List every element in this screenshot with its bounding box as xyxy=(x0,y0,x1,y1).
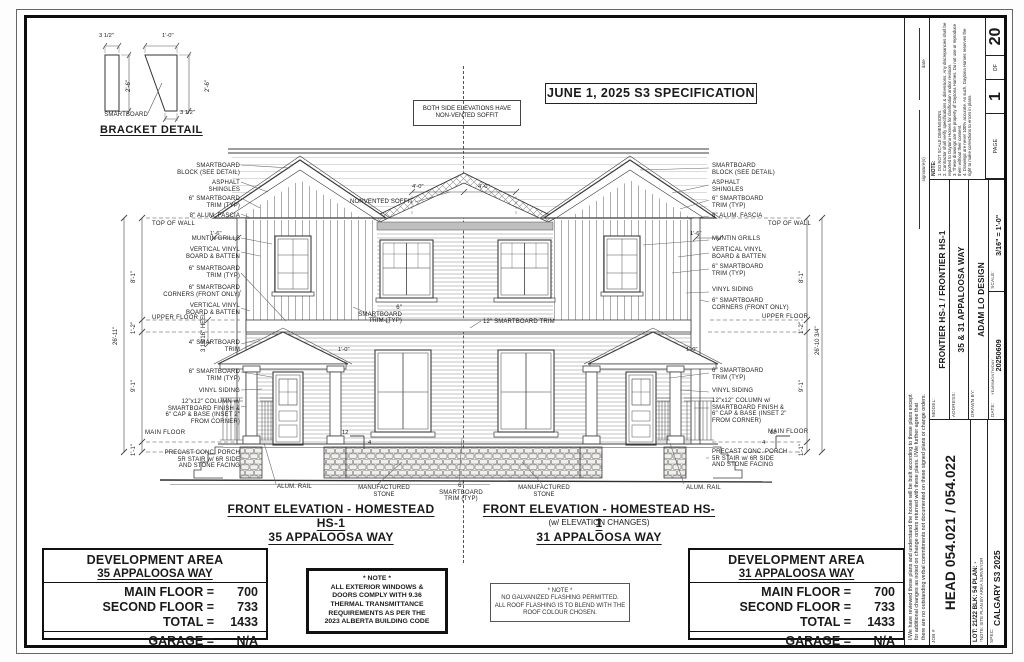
main-floor-label: MAIN FLOOR xyxy=(145,430,185,436)
scale-cell: SCALE: 3/16" = 1'-0" xyxy=(989,180,1005,291)
date-format-label: YEAR/MONTH/DAY xyxy=(990,359,995,395)
annotation-label: 6" SMARTBOARD CORNERS (FRONT ONLY) xyxy=(163,285,240,298)
development-area-title: DEVELOPMENT AREA xyxy=(690,553,903,567)
date-label: date xyxy=(921,28,926,100)
bracket-dim-width1: 3 1/2" xyxy=(99,33,114,39)
dimension: 1'-2" xyxy=(799,322,805,334)
address-value: 35 & 31 APPALOOSA WAY xyxy=(957,247,966,353)
annotation-label: ALUM. RAIL xyxy=(686,485,721,492)
annotation-label: MUNTIN GRILLS xyxy=(712,236,760,243)
annotation-label: PRECAST CONC. PORCH 5R STAIR w/ 6R SIDE … xyxy=(165,450,240,470)
scale-value: 3/16" = 1'-0" xyxy=(994,215,1003,256)
pitch-rise: 4 xyxy=(368,440,371,446)
annotation-label: 6" SMARTBOARD TRIM (TYP) xyxy=(712,264,763,277)
date-value: 20250609 xyxy=(994,339,1003,371)
note-line: * NOTE * xyxy=(491,588,629,595)
annotation-label: SMARTBOARD BLOCK (SEE DETAIL) xyxy=(177,163,240,176)
note-item: 4. Drawings are never 100% accurate. As … xyxy=(962,21,972,176)
row-label: TOTAL = xyxy=(800,615,851,629)
address-row: ADDRESS: 35 & 31 APPALOOSA WAY xyxy=(950,180,970,419)
annotation-label: 6" SMARTBOARD TRIM (TYP) xyxy=(189,369,240,382)
row-value: N/A xyxy=(851,634,895,648)
date-field: date xyxy=(908,28,926,100)
signature-strip: I/We have reviewed these plans and under… xyxy=(905,18,930,645)
note-line: ALL EXTERIOR WINDOWS & xyxy=(309,584,445,593)
bracket-dim-height1: 2'-6" xyxy=(126,80,132,92)
row-value: 733 xyxy=(214,600,258,614)
row-label: SECOND FLOOR = xyxy=(103,600,214,614)
annotation-label: 8" ALUM. FASCIA xyxy=(190,213,240,220)
annotation-label: 6" SMARTBOARD TRIM (TYP) xyxy=(712,196,763,209)
dimension: 9'-1" xyxy=(131,380,137,392)
model-value: FRONTIER HS-1 / FRONTIER HS-1 xyxy=(938,230,947,368)
bracket-dim-width2: 1'-0" xyxy=(162,33,174,39)
annotation-label: ASPHALT SHINGLES xyxy=(208,180,240,193)
development-area-address: 31 APPALOOSA WAY xyxy=(690,568,903,580)
annotation-label: VINYL SIDING xyxy=(712,388,753,395)
annotation-label: NONVENTED SOFFIT xyxy=(350,199,413,206)
bracket-dim-bottom: 3 1/2" xyxy=(180,110,195,116)
plan-sheet: 3 1/2" 1'-0" 2'-6" 2'-6" 3 1/2" SMARTBOA… xyxy=(0,0,1024,662)
development-area-header: DEVELOPMENT AREA 31 APPALOOSA WAY xyxy=(690,550,903,583)
annotation-label: VINYL SIDING xyxy=(199,388,240,395)
development-area-table-35: DEVELOPMENT AREA 35 APPALOOSA WAY MAIN F… xyxy=(42,548,268,640)
spec-date-banner: JUNE 1, 2025 S3 SPECIFICATION xyxy=(545,83,757,104)
drawn-by-label: DRAWN BY: xyxy=(970,390,975,417)
annotation-label: 8" ALUM. FASCIA xyxy=(712,213,762,220)
table-row: SECOND FLOOR =733 xyxy=(690,600,895,614)
upper-floor-label: UPPER FLOOR xyxy=(152,315,198,321)
row-label: SECOND FLOOR = xyxy=(740,600,851,614)
signature-label: signature(s) xyxy=(921,110,926,229)
annotation-label: 6" SMARTBOARD TRIM (TYP) xyxy=(189,196,240,209)
note-line: ALL ROOF FLASHING IS TO BLEND WITH THE xyxy=(491,603,629,610)
bracket-detail-title: BRACKET DETAIL xyxy=(100,124,203,136)
date-cell: DATE: YEAR/MONTH/DAY 20250609 xyxy=(989,291,1005,419)
dimension-overall: 26'-11" xyxy=(113,327,119,345)
annotation-label: 6" SMARTBOARD TRIM (TYP) xyxy=(189,266,240,279)
annotation-label: 6" SMARTBOARD TRIM (TYP) xyxy=(352,305,402,325)
page-label: PAGE xyxy=(993,139,999,154)
annotation-label: VERTICAL VINYL BOARD & BATTEN xyxy=(712,247,766,260)
garage-row: GARAGE =N/A xyxy=(690,631,903,650)
bracket-material-label: SMARTBOARD xyxy=(100,112,148,119)
top-of-wall-label: TOP OF WALL xyxy=(768,221,811,227)
row-label: GARAGE = xyxy=(785,634,851,648)
row-value: 1433 xyxy=(214,615,258,629)
lot-note: *NOTE: SITE PLAN BY AREA SURVEYOR xyxy=(979,423,984,642)
row-label: TOTAL = xyxy=(163,615,214,629)
signature-field: signature(s) xyxy=(908,110,926,229)
date-line xyxy=(908,28,920,100)
annotation-label: ASPHALT SHINGLES xyxy=(712,180,744,193)
elevation-title-left: FRONT ELEVATION - HOMESTEAD HS-1 xyxy=(215,502,447,530)
bracket-dim-height2: 2'-6" xyxy=(205,80,211,92)
elevation-address-left: 35 APPALOOSA WAY xyxy=(215,530,447,544)
page-number: 1 xyxy=(987,92,1005,101)
pitch-rise: 4 xyxy=(762,440,765,446)
annotation-label: 12" SMARTBOARD TRIM xyxy=(483,319,555,326)
disclaimer-text: I/We have reviewed these plans and under… xyxy=(905,233,929,645)
note-line: * NOTE * xyxy=(309,575,445,584)
dimension: 1'-0" xyxy=(338,347,350,353)
note-item: 2. Contractor shall verify specification… xyxy=(942,21,952,176)
note-item: 3. These drawings are the property of Da… xyxy=(952,21,962,176)
model-row: MODEL: FRONTIER HS-1 / FRONTIER HS-1 xyxy=(930,180,950,419)
job-number-label: JOB # xyxy=(931,629,936,643)
annotation-label: ALUM. RAIL xyxy=(277,484,312,491)
job-number-value: HEAD 054.021 / 054.022 xyxy=(943,455,958,610)
disclaimer-line: there are no outstanding verbal commitme… xyxy=(921,235,927,640)
annotation-label: VINYL SIDING xyxy=(712,287,753,294)
dimension: 8'-1" xyxy=(799,271,805,283)
dimension: 1'-2" xyxy=(131,322,137,334)
page-of-label: OF xyxy=(993,64,999,72)
table-row: TOTAL =1433 xyxy=(44,615,258,629)
annotation-label: 12"x12" COLUMN w/ SMARTBOARD FINISH & 6"… xyxy=(712,398,787,424)
note-line: REQUIREMENTS AS PER THE xyxy=(309,610,445,619)
annotation-label: 4" SMARTBOARD TRIM xyxy=(189,340,240,353)
note-line: DOORS COMPLY WITH 9.36 xyxy=(309,592,445,601)
date-cell-label: DATE: xyxy=(990,403,995,417)
dimension: 1'-1" xyxy=(799,444,805,456)
dimension: 1'-0" xyxy=(686,347,698,353)
annotation-label: PRECAST CONC. PORCH 5R STAIR w/ 6R SIDE … xyxy=(712,449,787,469)
spec-value: CALGARY S3 2025 xyxy=(992,550,1002,626)
pitch-run: 12 xyxy=(770,430,776,436)
dimension: 1'-6" xyxy=(210,231,222,237)
pitch-run: 12 xyxy=(342,430,348,436)
model-label: MODEL: xyxy=(931,398,936,417)
dimension-overall: 26'-10 3/4" xyxy=(815,326,821,355)
dimension: 4'-0" xyxy=(478,184,490,190)
table-row: TOTAL =1433 xyxy=(690,615,895,629)
job-section: JOB # HEAD 054.021 / 054.022 LOT: 21/22 … xyxy=(930,419,1004,645)
row-value: N/A xyxy=(214,634,258,648)
annotation-label: MANUFACTURED STONE xyxy=(358,485,410,498)
drawn-by-row: DRAWN BY: ADAM LO DESIGN xyxy=(969,180,989,419)
page-total: 20 xyxy=(987,28,1005,46)
drawn-by-value: ADAM LO DESIGN xyxy=(977,262,986,337)
soffit-note-box: BOTH SIDE ELEVATIONS HAVE NON-VENTED SOF… xyxy=(413,100,521,126)
notes-section: NOTE: 1. DO NOT SCALE DIMENSIONS. 2. Con… xyxy=(930,18,1004,179)
table-row: MAIN FLOOR =700 xyxy=(44,585,258,599)
page-number-box: PAGE 1 OF 20 xyxy=(986,18,1004,179)
row-value: 700 xyxy=(851,585,895,599)
spec-label: SPEC: xyxy=(989,628,994,643)
annotation-label: MANUFACTURED STONE xyxy=(518,485,570,498)
dimension: 1'-1" xyxy=(131,444,137,456)
annotation-label: 12"x12" COLUMN w/ SMARTBOARD FINISH & 6"… xyxy=(165,399,240,425)
table-row: MAIN FLOOR =700 xyxy=(690,585,895,599)
dimension: 9'-1" xyxy=(799,380,805,392)
date-scale-row: DATE: YEAR/MONTH/DAY 20250609 SCALE: 3/1… xyxy=(989,180,1005,419)
dimension: 8'-1" xyxy=(131,271,137,283)
row-label: GARAGE = xyxy=(148,634,214,648)
note-line: THERMAL TRANSMITTANCE xyxy=(309,601,445,610)
table-row: SECOND FLOOR =733 xyxy=(44,600,258,614)
row-label: MAIN FLOOR = xyxy=(761,585,851,599)
spec-row: SPEC: CALGARY S3 2025 xyxy=(988,420,1004,645)
garage-row: GARAGE =N/A xyxy=(44,631,266,650)
top-of-wall-label: TOP OF WALL xyxy=(152,221,195,227)
row-value: 700 xyxy=(214,585,258,599)
elevation-address-right: 31 APPALOOSA WAY xyxy=(482,530,716,544)
upper-floor-label: UPPER FLOOR xyxy=(762,314,808,320)
note-line: 2023 ALBERTA BUILDING CODE xyxy=(309,618,445,627)
note-line: NO GALVANIZED FLASHING PERMITTED. xyxy=(491,595,629,602)
dimension: 4'-0" xyxy=(412,184,424,190)
thermal-note-box: * NOTE * ALL EXTERIOR WINDOWS & DOORS CO… xyxy=(306,568,448,634)
signature-line xyxy=(908,110,920,229)
development-area-header: DEVELOPMENT AREA 35 APPALOOSA WAY xyxy=(44,550,266,583)
annotation-label: 6" SMARTBOARD TRIM (TYP) xyxy=(712,368,763,381)
dimension: 1'-6" xyxy=(690,231,702,237)
row-value: 1433 xyxy=(851,615,895,629)
development-area-title: DEVELOPMENT AREA xyxy=(44,553,266,567)
lot-row: LOT: 21/22 BLK: 54 PLAN: - *NOTE: SITE P… xyxy=(971,420,988,645)
development-area-address: 35 APPALOOSA WAY xyxy=(44,568,266,580)
lot-value: LOT: 21/22 BLK: 54 PLAN: - xyxy=(972,423,979,642)
annotation-label: 6" SMARTBOARD TRIM (TYP) xyxy=(436,483,486,503)
elevation-subtitle-right: (w/ ELEVATION CHANGES) xyxy=(482,518,716,527)
title-block: I/We have reviewed these plans and under… xyxy=(904,18,1004,645)
row-value: 733 xyxy=(851,600,895,614)
model-section: MODEL: FRONTIER HS-1 / FRONTIER HS-1 ADD… xyxy=(930,179,1004,419)
dimension-heel: 3 15/16" HEEL xyxy=(201,313,207,353)
flashing-note-box: * NOTE * NO GALVANIZED FLASHING PERMITTE… xyxy=(490,583,630,622)
annotation-label: 6" SMARTBOARD CORNERS (FRONT ONLY) xyxy=(712,298,789,311)
row-label: MAIN FLOOR = xyxy=(124,585,214,599)
annotation-label: VERTICAL VINYL BOARD & BATTEN xyxy=(186,247,240,260)
scale-label: SCALE: xyxy=(990,271,995,289)
address-label: ADDRESS: xyxy=(951,392,956,417)
development-area-table-31: DEVELOPMENT AREA 31 APPALOOSA WAY MAIN F… xyxy=(688,548,905,640)
note-line: ROOF COLOUR CHOSEN. xyxy=(491,610,629,617)
annotation-label: SMARTBOARD BLOCK (SEE DETAIL) xyxy=(712,163,775,176)
